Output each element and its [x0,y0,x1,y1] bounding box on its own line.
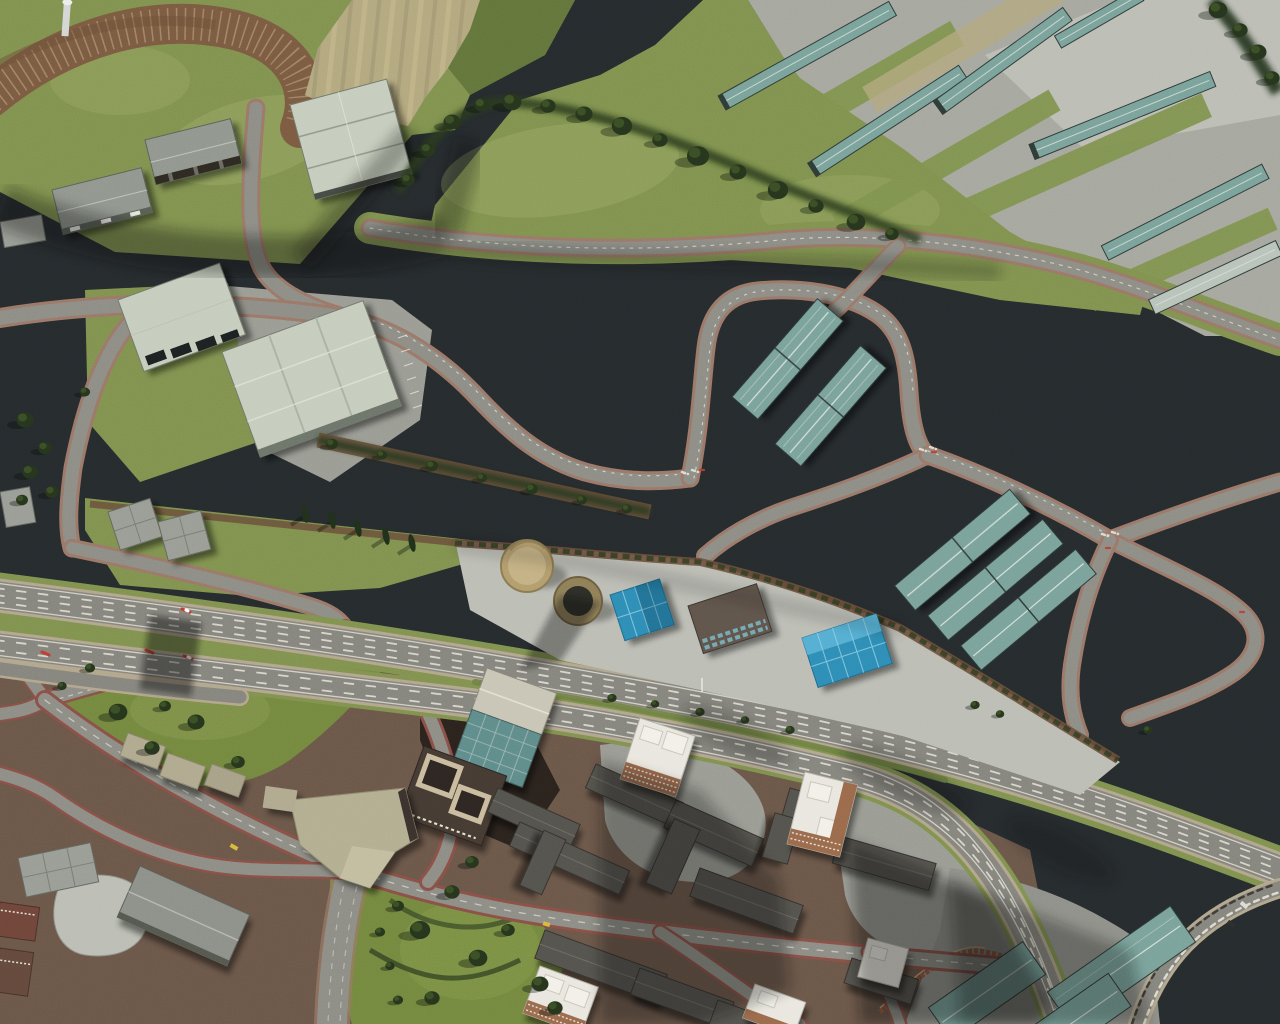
aerial-map-viewport[interactable]: Top-down aerial render of a partially bu… [0,0,1280,1024]
map-render: Top-down aerial render of a partially bu… [0,0,1280,1024]
noise-texture [0,0,1280,1024]
